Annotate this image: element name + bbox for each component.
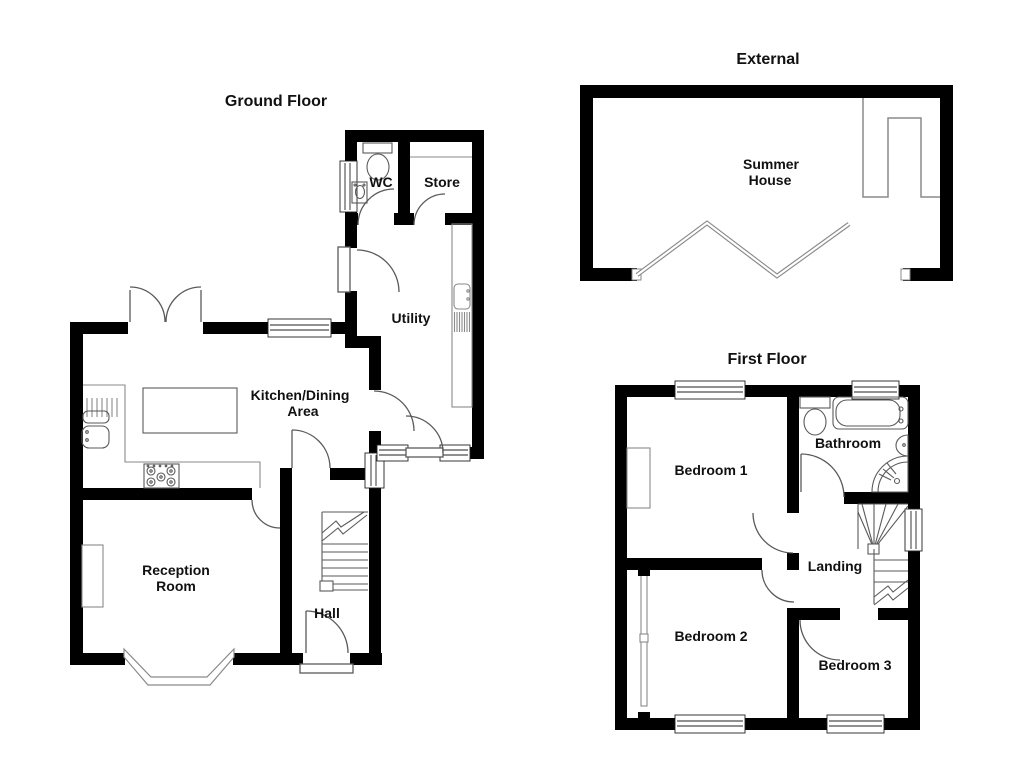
bedroom2-door-swing — [762, 570, 794, 602]
french-doors-swing — [130, 287, 201, 322]
hob-icon — [144, 464, 179, 488]
winder-stairs-icon — [858, 504, 908, 605]
kitchen-sink-icon — [82, 411, 109, 448]
utility-counter — [452, 224, 472, 407]
bedroom2-builtin — [640, 572, 648, 706]
kitchen-island — [143, 388, 237, 433]
external-labels: Summer House — [743, 156, 800, 188]
reception-alcove — [82, 545, 103, 607]
bifold-doors-icon — [637, 223, 849, 276]
room-label-bathroom: Bathroom — [815, 435, 881, 451]
wc-window-marker — [340, 161, 357, 212]
room-label-landing: Landing — [808, 558, 862, 574]
first-floor-plan: First Floor — [615, 351, 922, 733]
ground-floor-plan: Ground Floor — [70, 93, 484, 685]
room-label-summer-line2: House — [749, 172, 792, 188]
bedroom3-window-marker — [827, 715, 884, 733]
room-label-summer-line1: Summer — [743, 156, 800, 172]
side-door-swing — [338, 247, 399, 292]
bathroom-door-swing — [801, 454, 844, 497]
utility-window-marker — [377, 445, 408, 461]
store-door-swing — [414, 194, 445, 225]
floorplan-drawing: Ground Floor — [0, 0, 1024, 768]
toilet-icon-bathroom — [800, 397, 830, 435]
first-floor-title: First Floor — [727, 351, 806, 368]
room-label-hall: Hall — [314, 605, 340, 621]
bedroom3-door-swing — [800, 620, 840, 660]
external-title: External — [736, 51, 799, 68]
stairs-icon — [320, 512, 368, 591]
bedroom2-window-marker — [675, 715, 745, 733]
bay-window-marker — [124, 649, 234, 685]
ground-floor-title: Ground Floor — [225, 93, 327, 110]
reception-door-swing — [252, 500, 280, 528]
summerhouse-partition — [863, 98, 940, 197]
external-plan: External Summer House — [580, 51, 953, 281]
floorplan-page: Ground Floor — [0, 0, 1024, 768]
room-label-wc: WC — [369, 174, 392, 190]
room-label-reception-line2: Room — [156, 578, 196, 594]
wc-door-swing — [358, 189, 394, 225]
bath-icon — [833, 397, 908, 429]
ground-labels: WC Store Utility Kitchen/Dining Area Rec… — [142, 174, 460, 621]
shower-icon — [872, 456, 908, 492]
room-label-bedroom1: Bedroom 1 — [674, 462, 747, 478]
bedroom1-window-marker — [675, 381, 745, 399]
stairs-window-marker — [905, 509, 922, 551]
room-label-kitchen-line2: Area — [287, 403, 318, 419]
room-label-reception-line1: Reception — [142, 562, 210, 578]
room-label-store: Store — [424, 174, 460, 190]
bedroom1-door-swing — [753, 513, 793, 553]
kitchen-utility-door-swing — [374, 391, 414, 431]
kitchen-window-marker — [268, 319, 331, 337]
ground-windows — [124, 161, 470, 685]
basin-icon — [896, 435, 908, 456]
utility-back-door-swing — [406, 416, 443, 457]
first-labels: Bedroom 1 Bathroom Landing Bedroom 2 Bed… — [674, 435, 891, 673]
room-label-utility: Utility — [392, 310, 431, 326]
bedroom1-wardrobe — [627, 448, 650, 508]
utility-window-marker-2 — [440, 445, 470, 461]
room-label-bedroom2: Bedroom 2 — [674, 628, 747, 644]
room-label-kitchen-line1: Kitchen/Dining — [251, 387, 350, 403]
ground-fixtures — [82, 143, 472, 607]
room-label-bedroom3: Bedroom 3 — [818, 657, 891, 673]
bathroom-window-marker — [852, 381, 899, 399]
kitchen-hall-door-swing — [292, 430, 330, 468]
